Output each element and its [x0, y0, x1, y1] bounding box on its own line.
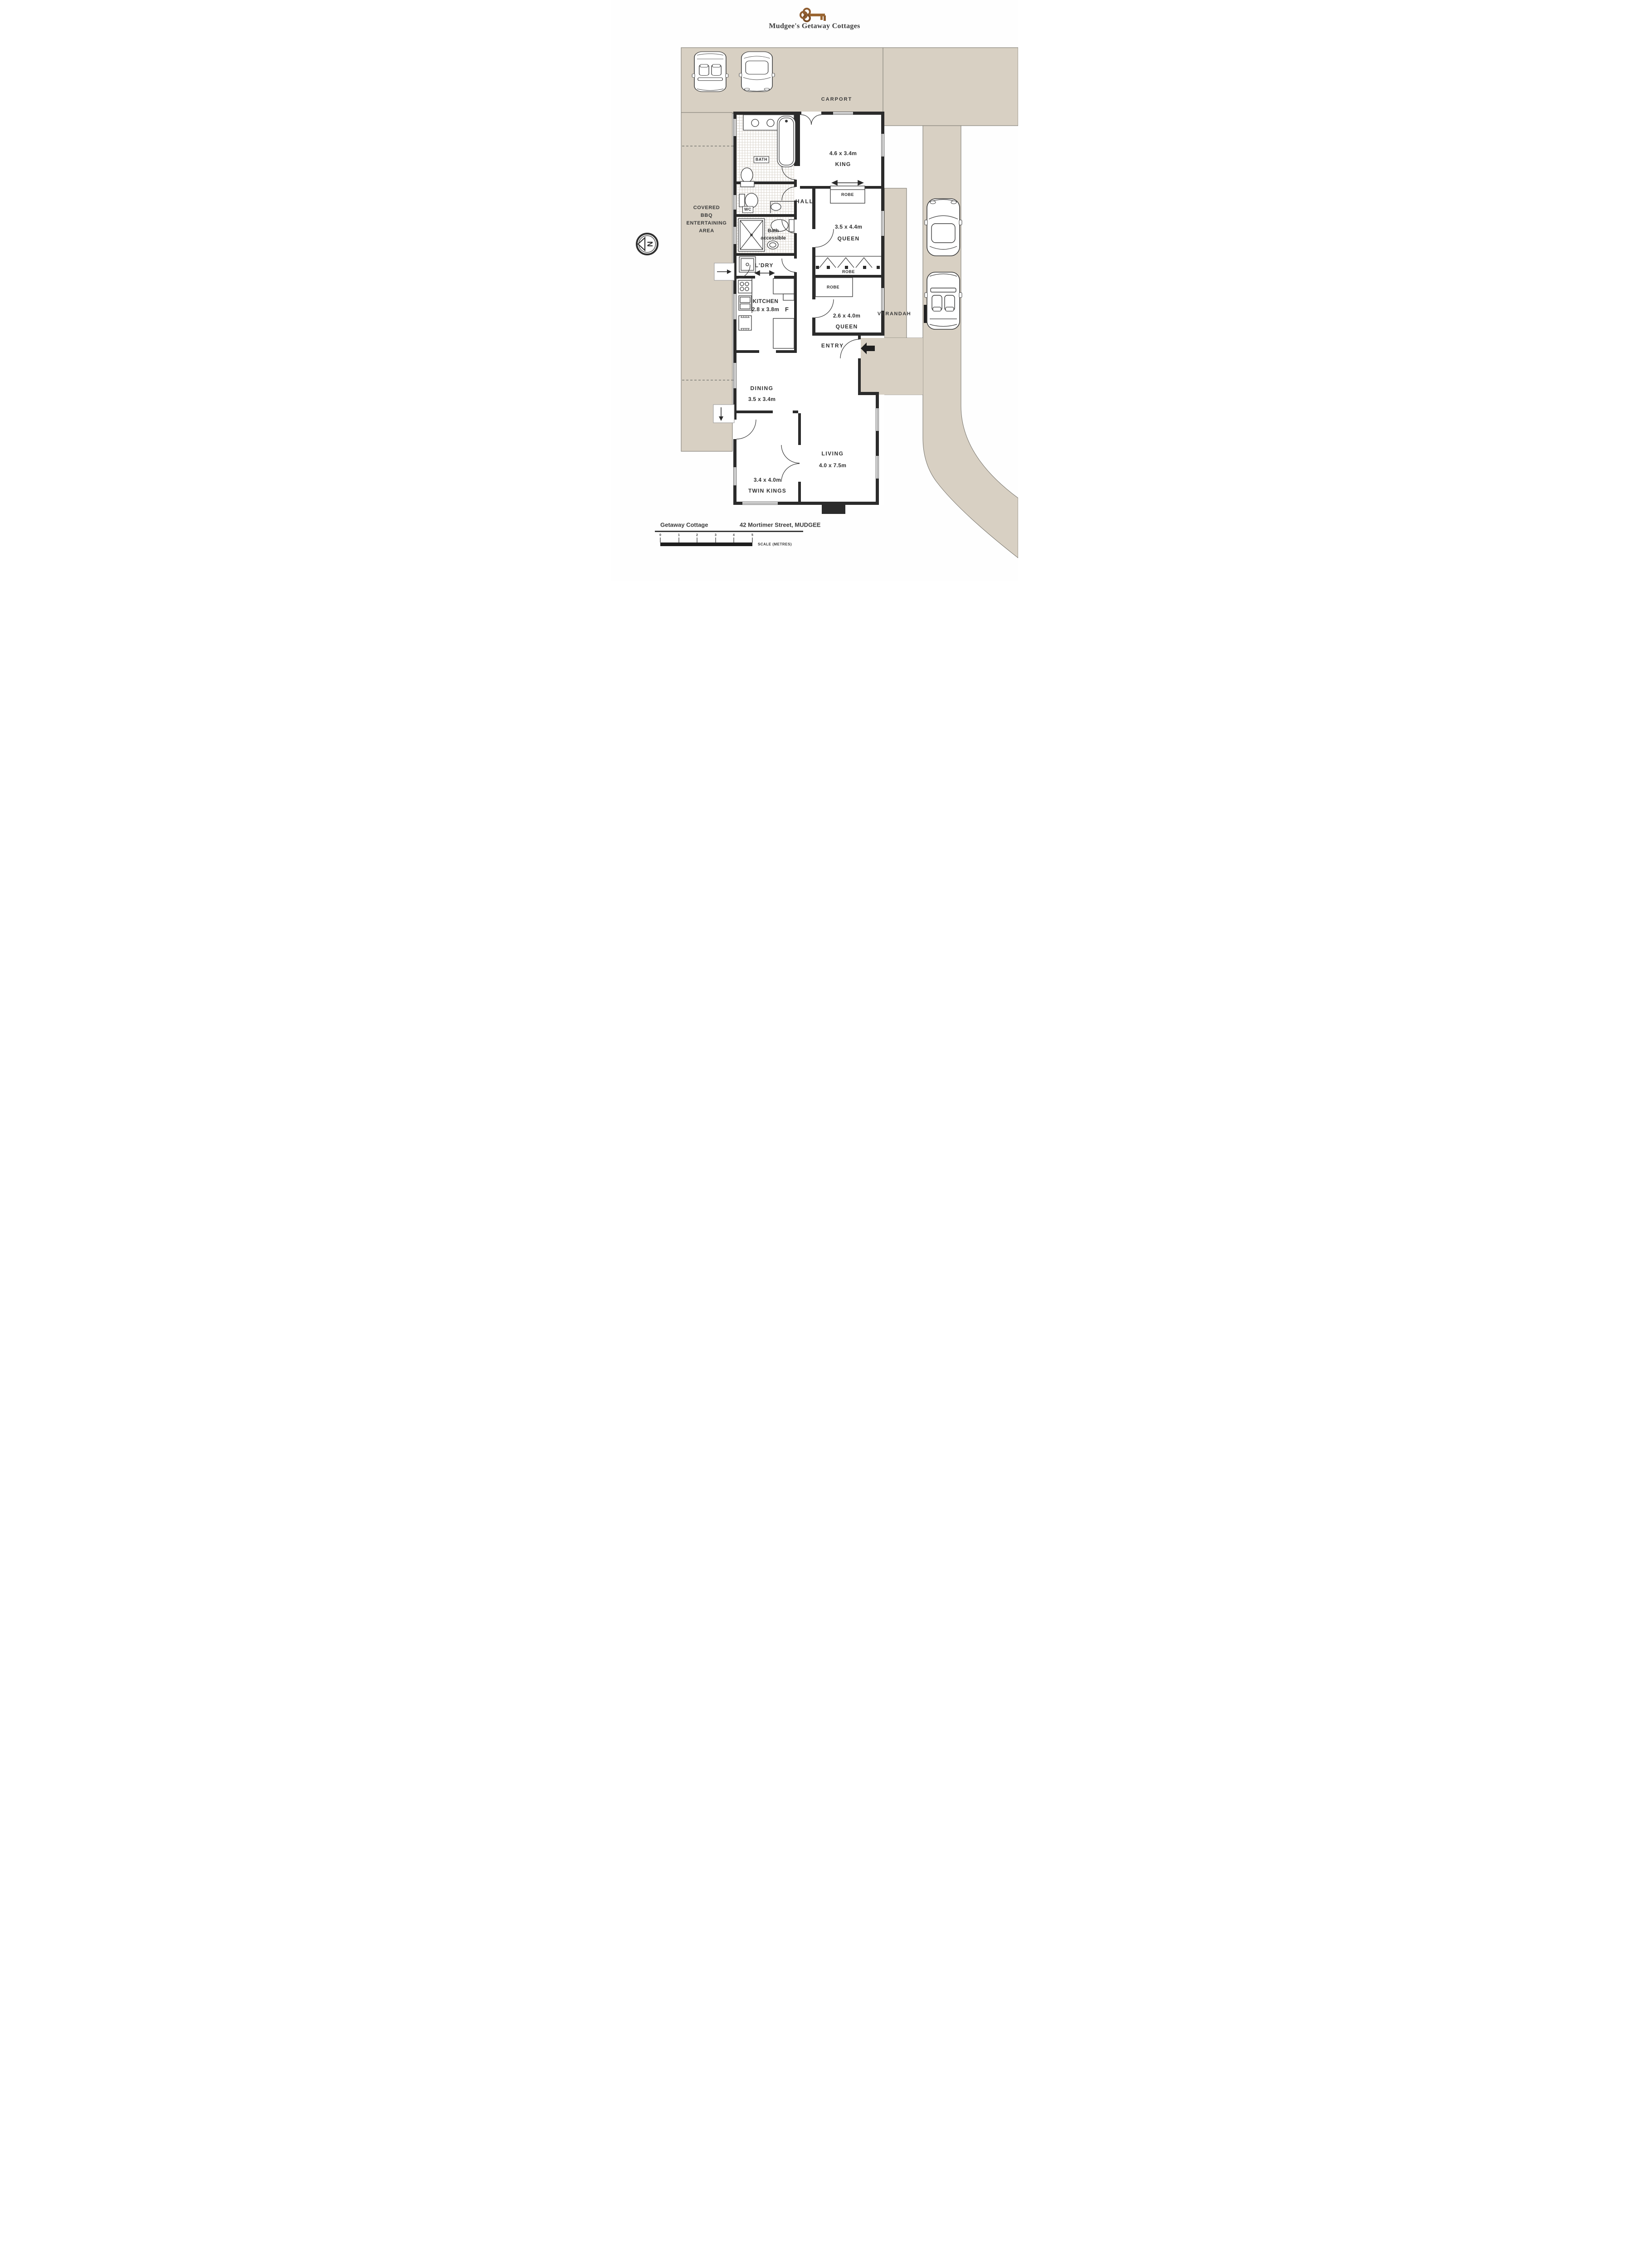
- king-robe-label: ROBE: [841, 192, 854, 197]
- wc-toilet-bowl: [745, 193, 758, 208]
- queen1-door-arc: [815, 229, 834, 247]
- accessible-toilet-tank: [789, 220, 794, 232]
- accessible-label-line1: Bath: [768, 228, 779, 234]
- bath-sink-1: [751, 119, 759, 127]
- queen2-label: QUEEN: [836, 323, 858, 330]
- bbq-label-line1: COVERED: [693, 205, 720, 210]
- page-title: Mudgee's Getaway Cottages: [769, 22, 860, 30]
- verandah-label: VERANDAH: [878, 311, 911, 317]
- king-label: KING: [835, 161, 851, 167]
- dining-label: DINING: [751, 385, 774, 391]
- laundry-hall-door-arc: [782, 259, 795, 272]
- scale-tick-2: 2: [696, 534, 698, 537]
- stove: [738, 280, 752, 293]
- bbq-label-line4: AREA: [699, 228, 714, 234]
- living-twin-double-door: [781, 445, 800, 482]
- bbq-label-line2: BBQ: [701, 213, 712, 218]
- floorplan-page: N Mudgee's Getaway Cottages CARPORT COVE…: [611, 0, 1018, 581]
- dining-dim: 3.5 x 3.4m: [748, 396, 775, 402]
- key-tooth: [820, 16, 823, 20]
- living-dim: 4.0 x 7.5m: [819, 462, 846, 469]
- kitchen-slider-arrow-right: [770, 271, 774, 275]
- north-compass: N: [637, 234, 658, 254]
- king-entry-double-door: [801, 115, 821, 125]
- wc-basin: [771, 203, 781, 210]
- fixtures-layer: N: [611, 0, 1018, 581]
- scale-tick-1: 1: [678, 534, 680, 537]
- scale-bar: [660, 538, 752, 546]
- bbq-step: [713, 405, 734, 423]
- king-robe-arrow-left: [832, 181, 837, 185]
- queen2-dim: 2.6 x 4.0m: [833, 313, 860, 319]
- entry-label: ENTRY: [821, 342, 844, 349]
- footer-address: 42 Mortimer Street, MUDGEE: [740, 522, 820, 528]
- bath-door-arc: [782, 166, 795, 180]
- key-shaft: [810, 14, 825, 16]
- entry-direction-arrow-icon: [861, 342, 875, 354]
- bathtub: [777, 116, 795, 167]
- scale-tick-5: 5: [751, 534, 753, 537]
- bath-sink-2: [767, 119, 774, 127]
- scale-tick-3: 3: [715, 534, 717, 537]
- carport-label: CARPORT: [821, 97, 852, 102]
- bathtub-faucet: [785, 120, 788, 122]
- queen2-door-arc: [815, 299, 834, 318]
- kitchen-counter-right-lower: [773, 318, 794, 348]
- kitchen-counter-right-upper: [773, 279, 794, 294]
- key-tooth: [824, 15, 826, 21]
- footer-rule: [655, 531, 803, 532]
- bath-toilet-tank: [741, 181, 754, 187]
- footer-property-name: Getaway Cottage: [660, 522, 708, 528]
- twin-label: TWIN KINGS: [748, 488, 786, 494]
- kitchen-counter-right-mid: [783, 294, 794, 300]
- bath-toilet-bowl: [741, 168, 753, 182]
- queen1-robe-label: ROBE: [842, 269, 855, 274]
- scale-tick-4: 4: [733, 534, 735, 537]
- wc-door-arc: [782, 187, 795, 200]
- kitchen-dim: 2.8 x 3.8m: [752, 306, 779, 313]
- accessible-basin: [767, 241, 778, 249]
- scale-label: SCALE (METRES): [758, 543, 792, 547]
- bbq-label-line3: ENTERTAINING: [687, 220, 727, 226]
- laundry-tub: [739, 257, 756, 272]
- queen1-label: QUEEN: [838, 235, 860, 242]
- wc-toilet-tank: [739, 194, 745, 207]
- twin-dim: 3.4 x 4.0m: [754, 477, 781, 483]
- compass-letter: N: [646, 241, 654, 247]
- fridge-label: F: [785, 306, 789, 313]
- bath-label: BATH: [754, 156, 769, 163]
- queen2-robe-label: ROBE: [827, 285, 839, 289]
- accessible-label-line2: accessible: [761, 235, 786, 241]
- kitchen-sink: [739, 296, 751, 310]
- queen1-dim: 3.5 x 4.4m: [835, 224, 862, 230]
- scale-bar-rule: [660, 543, 752, 546]
- laundry-label: L'DRY: [755, 262, 773, 269]
- twin-door-arc: [736, 420, 756, 439]
- kitchen-label: KITCHEN: [753, 298, 779, 304]
- hall-label: HALL: [795, 198, 814, 205]
- wc-label: WC: [742, 206, 753, 213]
- king-dim: 4.6 x 3.4m: [829, 150, 857, 156]
- living-label: LIVING: [821, 450, 844, 457]
- scale-tick-0: 0: [659, 534, 661, 537]
- king-robe-arrow-right: [858, 181, 863, 185]
- accessible-shower-drain: [751, 234, 752, 236]
- key-logo-icon: [800, 9, 826, 21]
- kitchen-appliance: [739, 316, 751, 330]
